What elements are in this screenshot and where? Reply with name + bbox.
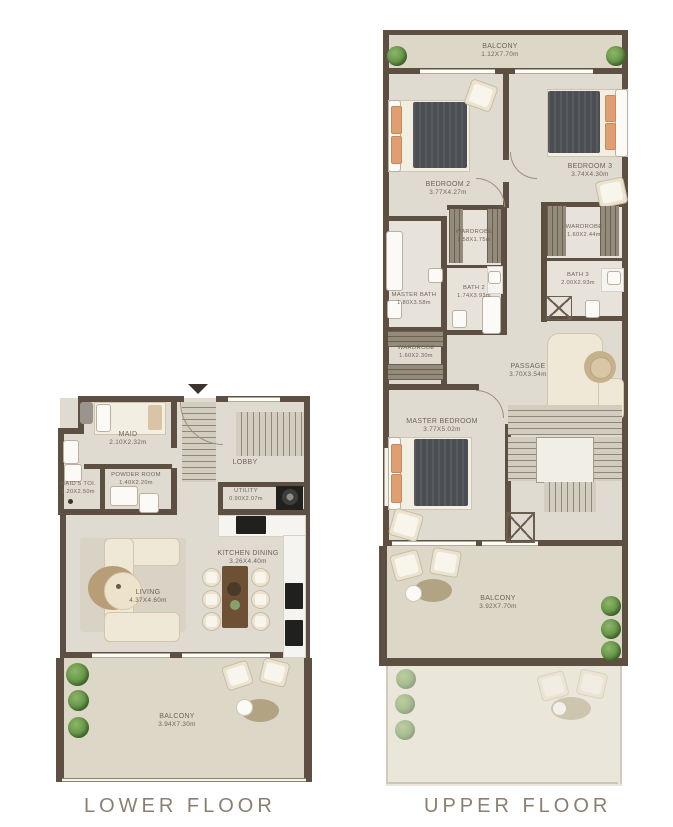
- room-label-kitchen: KITCHEN DINING 3.26X4.40m: [208, 549, 288, 567]
- wall-segment: [304, 658, 312, 782]
- room-label-maid: MAID 2.10X2.32m: [98, 430, 158, 448]
- plant: [601, 619, 621, 639]
- room-label-lower-balcony: BALCONY 3.94X7.30m: [138, 712, 216, 730]
- entry-arrow-icon: [188, 384, 208, 394]
- side-table-top: [590, 357, 612, 379]
- plant: [601, 596, 621, 616]
- wardrobe-shelving: [388, 364, 443, 380]
- bed-blanket: [548, 91, 600, 153]
- room-name: BALCONY: [138, 712, 216, 721]
- toilet: [452, 310, 467, 328]
- room-label-utility: UTILITY 0.90X2.07m: [224, 488, 268, 504]
- floorplan-image: MAID 2.10X2.32m MAID'S TOI. 1.20X2.50m P…: [0, 0, 673, 827]
- wall-segment: [171, 396, 177, 448]
- dining-chair: [202, 568, 221, 587]
- wall-segment: [56, 658, 64, 782]
- room-dims: 3.77X4.27m: [408, 189, 488, 198]
- window: [420, 69, 495, 74]
- fridge: [285, 620, 303, 646]
- room-dims: 2.10X2.32m: [98, 439, 158, 448]
- wall-segment: [383, 658, 628, 666]
- stairs: [594, 437, 622, 481]
- room-label-lobby: LOBBY: [218, 458, 272, 467]
- room-dims: 1.40X2.20m: [110, 480, 162, 488]
- room-dims: 1.60X2.44m: [550, 232, 618, 240]
- ghost-balcony-below: [386, 666, 622, 786]
- outdoor-table-top: [405, 585, 422, 602]
- sink: [488, 271, 501, 284]
- room-label-bedroom3: BEDROOM 3 3.74X4.30m: [550, 162, 630, 180]
- drain-icon: [68, 499, 73, 504]
- room-name: POWDER ROOM: [110, 472, 162, 480]
- plant: [387, 46, 407, 66]
- ghost-rail: [386, 666, 388, 784]
- room-dims: 1.20X2.50m: [57, 489, 99, 497]
- room-dims: 0.90X2.07m: [224, 496, 268, 504]
- room-dims: 1.58X1.75m: [445, 237, 503, 245]
- plant: [395, 694, 415, 714]
- room-name: MASTER BEDROOM: [398, 417, 486, 426]
- room-name: BATH 3: [546, 272, 610, 280]
- room-name: MASTER BATH: [386, 292, 442, 300]
- room-label-powder: POWDER ROOM 1.40X2.20m: [110, 472, 162, 488]
- room-name: LOBBY: [218, 458, 272, 467]
- plant: [68, 690, 89, 711]
- wall-segment: [60, 510, 66, 658]
- window: [392, 541, 476, 546]
- bed-throw: [148, 405, 162, 430]
- dining-chair: [251, 568, 270, 587]
- cooktop: [236, 516, 266, 534]
- room-dims: 3.70X3.54m: [492, 371, 564, 380]
- bathtub: [482, 296, 501, 334]
- dining-chair: [202, 590, 221, 609]
- room-dims: 1.74X3.93m: [446, 293, 502, 301]
- bed-pillow: [605, 123, 616, 150]
- room-name: KITCHEN DINING: [208, 549, 288, 558]
- wall-segment: [503, 68, 509, 160]
- headboard: [615, 89, 628, 157]
- plant: [396, 669, 416, 689]
- room-name: WARDROBE: [550, 224, 618, 232]
- window: [92, 653, 170, 658]
- toilet: [64, 464, 82, 482]
- plant: [601, 641, 621, 661]
- room-name: BALCONY: [458, 594, 538, 603]
- cabinet: [80, 402, 93, 424]
- outdoor-table-top: [553, 702, 566, 715]
- room-label-bedroom2: BEDROOM 2 3.77X4.27m: [408, 180, 488, 198]
- stairs: [508, 437, 536, 481]
- dining-chair: [251, 590, 270, 609]
- room-label-master-bath: MASTER BATH 1.80X3.58m: [386, 292, 442, 308]
- room-name: MAID'S TOI.: [57, 481, 99, 489]
- room-label-upper-balcony: BALCONY 3.92X7.70m: [458, 594, 538, 612]
- room-name: MAID: [98, 430, 158, 439]
- ghost-rail: [388, 782, 618, 784]
- dining-table: [222, 566, 248, 628]
- room-name: BEDROOM 3: [550, 162, 630, 171]
- shaft: [506, 512, 535, 543]
- sink: [428, 268, 443, 283]
- room-label-passage: PASSAGE 3.70X3.54m: [492, 362, 564, 380]
- bed-pillow: [391, 136, 402, 164]
- basin: [139, 493, 159, 513]
- room-dims: 2.00X2.93m: [546, 280, 610, 288]
- bed-blanket: [414, 439, 468, 506]
- balcony-railing: [62, 778, 306, 782]
- room-label-bath2: BATH 2 1.74X3.93m: [446, 285, 502, 301]
- room-name: WARDROBE: [390, 345, 442, 353]
- wall-segment: [545, 258, 623, 261]
- bed-pillow: [96, 404, 111, 432]
- toilet: [585, 300, 600, 318]
- table-plant: [230, 600, 240, 610]
- room-dims: 1.12X7.70m: [459, 51, 541, 60]
- room-label-living: LIVING 4.37X4.60m: [118, 588, 178, 606]
- room-name: UTILITY: [224, 488, 268, 496]
- room-name: WARDROBE: [445, 229, 503, 237]
- room-name: PASSAGE: [492, 362, 564, 371]
- wall-segment: [171, 468, 177, 515]
- window: [182, 653, 270, 658]
- stair-landing: [536, 437, 594, 483]
- wall-segment: [100, 469, 105, 515]
- bed-pillow: [391, 106, 402, 134]
- room-label-maids-toi: MAID'S TOI. 1.20X2.50m: [57, 481, 99, 497]
- upper-floor-title: UPPER FLOOR: [424, 795, 611, 818]
- window: [228, 397, 280, 402]
- shower: [546, 296, 572, 320]
- stairs: [544, 482, 596, 512]
- washing-machine-door: [282, 489, 298, 505]
- bed-blanket: [413, 102, 467, 168]
- dining-chair: [202, 612, 221, 631]
- room-label-wardrobe-master: WARDROBE 1.60X2.30m: [390, 345, 442, 361]
- wall-segment: [84, 464, 172, 469]
- room-dims: 3.77X5.02m: [398, 426, 486, 435]
- room-label-top-balcony: BALCONY 1.12X7.70m: [459, 42, 541, 60]
- oven: [285, 583, 303, 609]
- room-name: BEDROOM 2: [408, 180, 488, 189]
- room-dims: 1.60X2.30m: [390, 353, 442, 361]
- wall-segment: [379, 546, 387, 666]
- room-dims: 3.92X7.70m: [458, 603, 538, 612]
- wall-segment: [383, 216, 447, 221]
- dining-chair: [251, 612, 270, 631]
- plant: [606, 46, 626, 66]
- room-dims: 3.94X7.30m: [138, 721, 216, 730]
- room-dims: 3.74X4.30m: [550, 171, 630, 180]
- bathtub: [386, 231, 403, 291]
- plant: [395, 720, 415, 740]
- wall-segment: [383, 30, 628, 35]
- bed-pillow: [391, 474, 402, 503]
- room-dims: 1.80X3.58m: [386, 300, 442, 308]
- ghost-rail: [620, 666, 622, 784]
- sofa: [104, 612, 180, 642]
- wall-segment: [218, 487, 223, 511]
- wall-segment: [383, 384, 479, 390]
- outdoor-table-top: [236, 699, 253, 716]
- room-name: LIVING: [118, 588, 178, 597]
- room-dims: 4.37X4.60m: [118, 597, 178, 606]
- sink: [63, 440, 79, 464]
- bed-pillow: [605, 95, 616, 122]
- room-dims: 3.26X4.40m: [208, 558, 288, 567]
- outdoor-chair: [429, 547, 462, 579]
- room-label-master-bedroom: MASTER BEDROOM 3.77X5.02m: [398, 417, 486, 435]
- outdoor-chair: [576, 668, 609, 699]
- stairs: [236, 412, 304, 456]
- lower-floor-title: LOWER FLOOR: [84, 795, 276, 818]
- room-name: BALCONY: [459, 42, 541, 51]
- window: [515, 69, 593, 74]
- room-label-bath3: BATH 3 2.00X2.93m: [546, 272, 610, 288]
- room-label-wardrobe-right: WARDROBE 1.60X2.44m: [550, 224, 618, 240]
- room-label-wardrobe-mid: WARDROBE 1.58X1.75m: [445, 229, 503, 245]
- room-name: BATH 2: [446, 285, 502, 293]
- plant: [66, 663, 89, 686]
- vanity: [110, 486, 138, 506]
- bed-pillow: [391, 444, 402, 473]
- stairs: [508, 405, 622, 435]
- table-decor: [227, 582, 241, 596]
- plant: [68, 717, 89, 738]
